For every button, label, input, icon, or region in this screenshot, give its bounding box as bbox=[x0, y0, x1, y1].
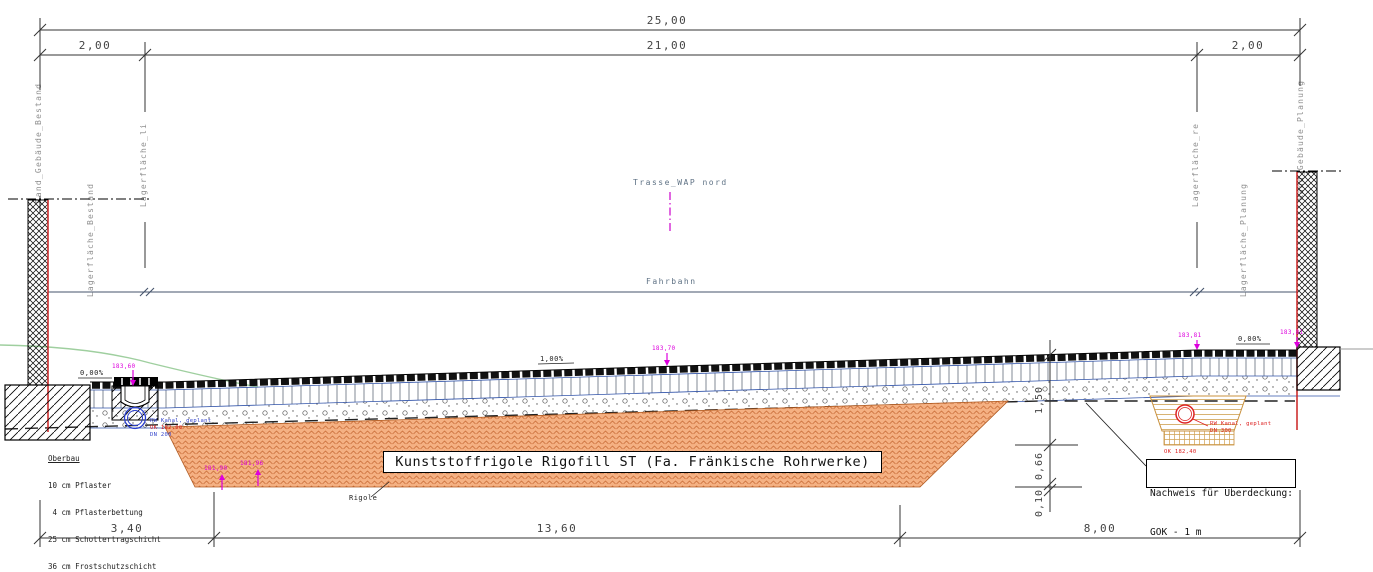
slope-left: 0,00% bbox=[80, 369, 104, 377]
right-foundation bbox=[1297, 347, 1340, 390]
rigole-title-text: Kunststoffrigole Rigofill ST (Fa. Fränki… bbox=[395, 454, 870, 470]
channel-grate bbox=[114, 377, 158, 386]
right-pipe-ok: OK 182,40 bbox=[1164, 449, 1197, 455]
oberbau-layer-1: 10 cm Pflaster bbox=[48, 481, 166, 490]
label-fahrbahn: Fahrbahn bbox=[646, 277, 697, 286]
dim-top-center: 21,00 bbox=[647, 39, 688, 52]
oberbau-layer-2: 4 cm Pflasterbettung bbox=[48, 508, 166, 517]
dim-vert-low: 0,10 bbox=[1034, 489, 1045, 517]
elevation-mid: 183,70 bbox=[652, 345, 676, 352]
dimension-labels-bottom: 3,40 13,60 8,00 bbox=[111, 522, 1117, 535]
label-lagerflaeche-planung: Lagerfläche_Planung bbox=[1239, 183, 1248, 297]
left-pipe-label-1: RW Kanal, geplant bbox=[150, 418, 211, 424]
label-rand-gebaeude-bestand: Rand_Gebäude_Bestand bbox=[34, 83, 43, 203]
label-lagerflaeche-bestand: Lagerfläche_Bestand bbox=[86, 183, 95, 297]
dim-vert-upper: 1,50 bbox=[1034, 386, 1045, 414]
slope-center: 1,00% bbox=[540, 355, 564, 363]
rigole-title-box: Kunststoffrigole Rigofill ST (Fa. Fränki… bbox=[383, 451, 882, 473]
elevation-rigole-bottom-1: 181,90 bbox=[204, 465, 228, 472]
elevation-right: 183,81 bbox=[1178, 332, 1202, 339]
label-lagerflaeche-re: Lagerfläche_re bbox=[1191, 123, 1200, 207]
reference-labels: Rand_Gebäude_Bestand Lagerfläche_Bestand… bbox=[34, 80, 1305, 297]
cross-section-drawing: Rand_Gebäude_Bestand Lagerfläche_Bestand… bbox=[0, 0, 1373, 572]
dim-top-total: 25,00 bbox=[647, 14, 688, 27]
left-foundation bbox=[5, 385, 90, 440]
dim-bottom-center: 13,60 bbox=[537, 522, 578, 535]
elevation-right-wall: 183,81 bbox=[1280, 329, 1304, 336]
note-line-2: GOK - 1 m bbox=[1150, 526, 1292, 539]
note-line-1: Nachweis für Überdeckung: bbox=[1150, 487, 1292, 500]
right-wall bbox=[1297, 172, 1317, 347]
elevation-rigole-bottom-2: 181,96 bbox=[240, 460, 264, 467]
label-trasse-wap-nord: Trasse_WAP nord bbox=[633, 178, 728, 187]
oberbau-layer-4: 36 cm Frostschutzschicht bbox=[48, 562, 166, 571]
dim-top-left: 2,00 bbox=[79, 39, 112, 52]
label-lagerflaeche-li: Lagerfläche_li bbox=[139, 123, 148, 207]
oberbau-layer-3: 25 cm Schottertragschicht bbox=[48, 535, 166, 544]
dimension-chain-bottom bbox=[34, 490, 1306, 547]
oberbau-heading: Oberbau bbox=[48, 454, 166, 463]
right-pipe-label-1: RW Kanal, geplant bbox=[1210, 421, 1271, 427]
dimension-labels-top: 25,00 2,00 21,00 2,00 bbox=[79, 14, 1265, 52]
left-pipe-label-2: OK 182,00 bbox=[150, 425, 183, 431]
elevation-channel: 183,60 bbox=[112, 363, 136, 370]
dimension-labels-vertical: 1,50 0,66 0,10 bbox=[1034, 386, 1045, 517]
dim-bottom-right: 8,00 bbox=[1084, 522, 1117, 535]
left-wall bbox=[28, 200, 48, 385]
note-leader bbox=[1086, 403, 1146, 466]
fahrbahn-line bbox=[48, 288, 1297, 296]
dim-top-right: 2,00 bbox=[1232, 39, 1265, 52]
cover-proof-note-box: Nachweis für Überdeckung: GOK - 1 m bbox=[1146, 459, 1296, 488]
dim-vert-mid: 0,66 bbox=[1034, 452, 1045, 480]
oberbau-legend: Oberbau 10 cm Pflaster 4 cm Pflasterbett… bbox=[48, 436, 166, 572]
slope-right: 0,00% bbox=[1238, 335, 1262, 343]
right-pipe-label-2: DN 300 bbox=[1210, 428, 1232, 434]
